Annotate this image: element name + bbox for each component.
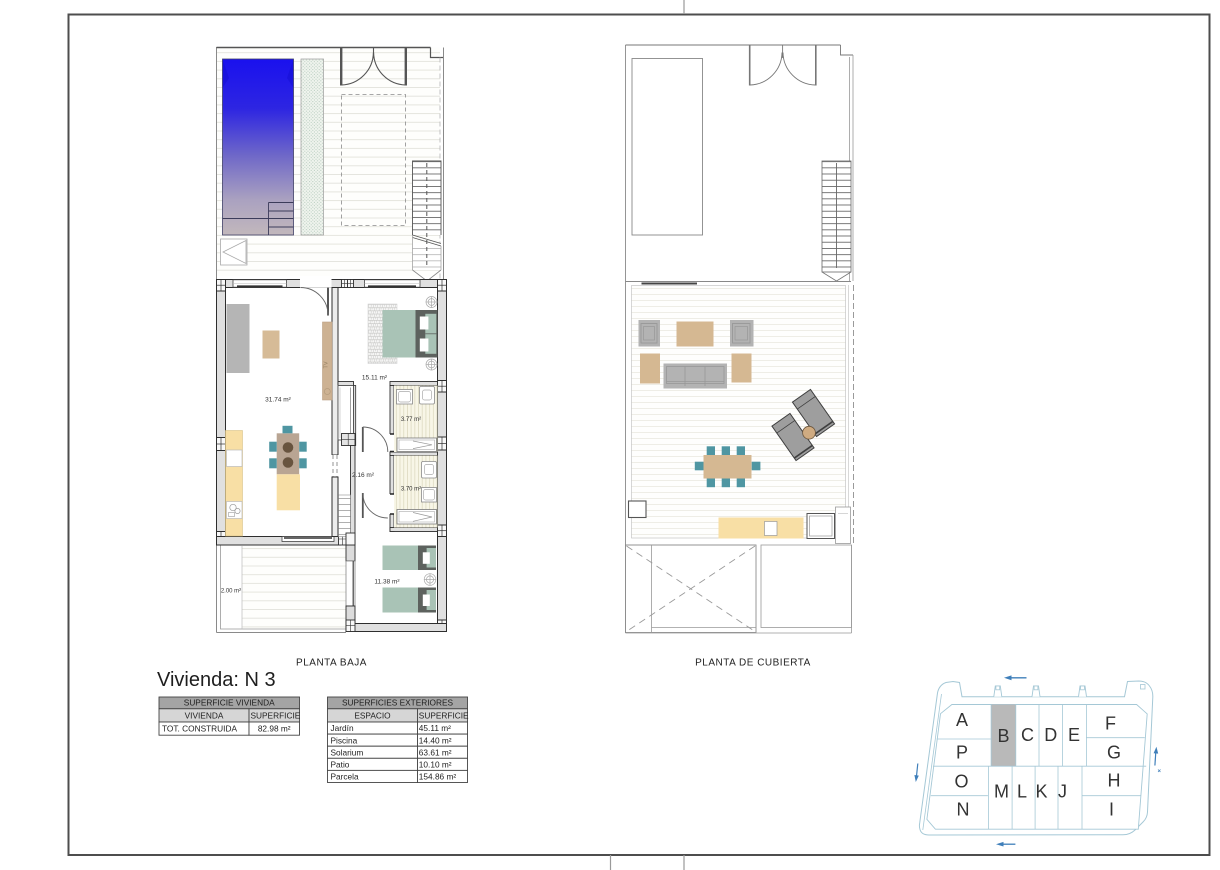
svg-text:SUPERFICIE VIVIENDA: SUPERFICIE VIVIENDA xyxy=(184,698,275,708)
svg-text:F: F xyxy=(1105,714,1116,734)
svg-text:N: N xyxy=(957,800,970,820)
svg-text:D: D xyxy=(1044,725,1057,745)
svg-text:M: M xyxy=(994,782,1009,802)
svg-text:SUPERFICIES EXTERIORES: SUPERFICIES EXTERIORES xyxy=(342,698,454,708)
svg-text:G: G xyxy=(1107,743,1121,763)
svg-text:VIVIENDA: VIVIENDA xyxy=(185,710,224,720)
svg-text:H: H xyxy=(1108,771,1121,791)
svg-text:K: K xyxy=(1035,782,1047,802)
svg-text:45.11 m²: 45.11 m² xyxy=(419,723,451,733)
svg-text:O: O xyxy=(954,772,968,792)
svg-text:SUPERFICIE: SUPERFICIE xyxy=(419,710,469,720)
svg-text:PLANTA BAJA: PLANTA BAJA xyxy=(296,658,367,669)
svg-text:C: C xyxy=(1021,725,1034,745)
svg-text:3.70 m²: 3.70 m² xyxy=(401,487,421,493)
svg-text:31.74 m²: 31.74 m² xyxy=(265,397,291,404)
svg-text:Patio: Patio xyxy=(331,760,350,770)
svg-text:E: E xyxy=(1068,725,1080,745)
svg-text:ESPACIO: ESPACIO xyxy=(354,710,391,720)
svg-text:11.38 m²: 11.38 m² xyxy=(374,579,400,586)
svg-text:Jardín: Jardín xyxy=(331,723,354,733)
svg-text:3.77 m²: 3.77 m² xyxy=(401,417,421,423)
svg-text:Parcela: Parcela xyxy=(331,772,360,782)
svg-text:SUPERFICIE: SUPERFICIE xyxy=(251,710,301,720)
svg-text:2.16 m²: 2.16 m² xyxy=(352,472,375,479)
svg-text:Piscina: Piscina xyxy=(331,735,358,745)
svg-text:L: L xyxy=(1017,782,1027,802)
svg-text:63.61 m²: 63.61 m² xyxy=(419,747,452,757)
svg-text:154.86 m²: 154.86 m² xyxy=(419,772,457,782)
svg-text:2.00 m²: 2.00 m² xyxy=(221,589,241,595)
svg-text:Solarium: Solarium xyxy=(331,747,364,757)
svg-text:A: A xyxy=(956,710,968,730)
svg-text:B: B xyxy=(997,726,1009,746)
svg-text:TOT. CONSTRUIDA: TOT. CONSTRUIDA xyxy=(162,724,237,734)
svg-text:I: I xyxy=(1109,800,1114,820)
svg-text:TV: TV xyxy=(324,361,330,368)
svg-text:14.40 m²: 14.40 m² xyxy=(419,735,452,745)
svg-text:10.10 m²: 10.10 m² xyxy=(419,760,452,770)
svg-text:P: P xyxy=(956,743,968,763)
svg-text:Vivienda: N 3: Vivienda: N 3 xyxy=(157,669,276,691)
svg-text:J: J xyxy=(1058,782,1067,802)
svg-text:15.11 m²: 15.11 m² xyxy=(362,375,388,382)
svg-text:82.98 m²: 82.98 m² xyxy=(258,724,291,734)
svg-text:PLANTA DE CUBIERTA: PLANTA DE CUBIERTA xyxy=(695,658,811,669)
